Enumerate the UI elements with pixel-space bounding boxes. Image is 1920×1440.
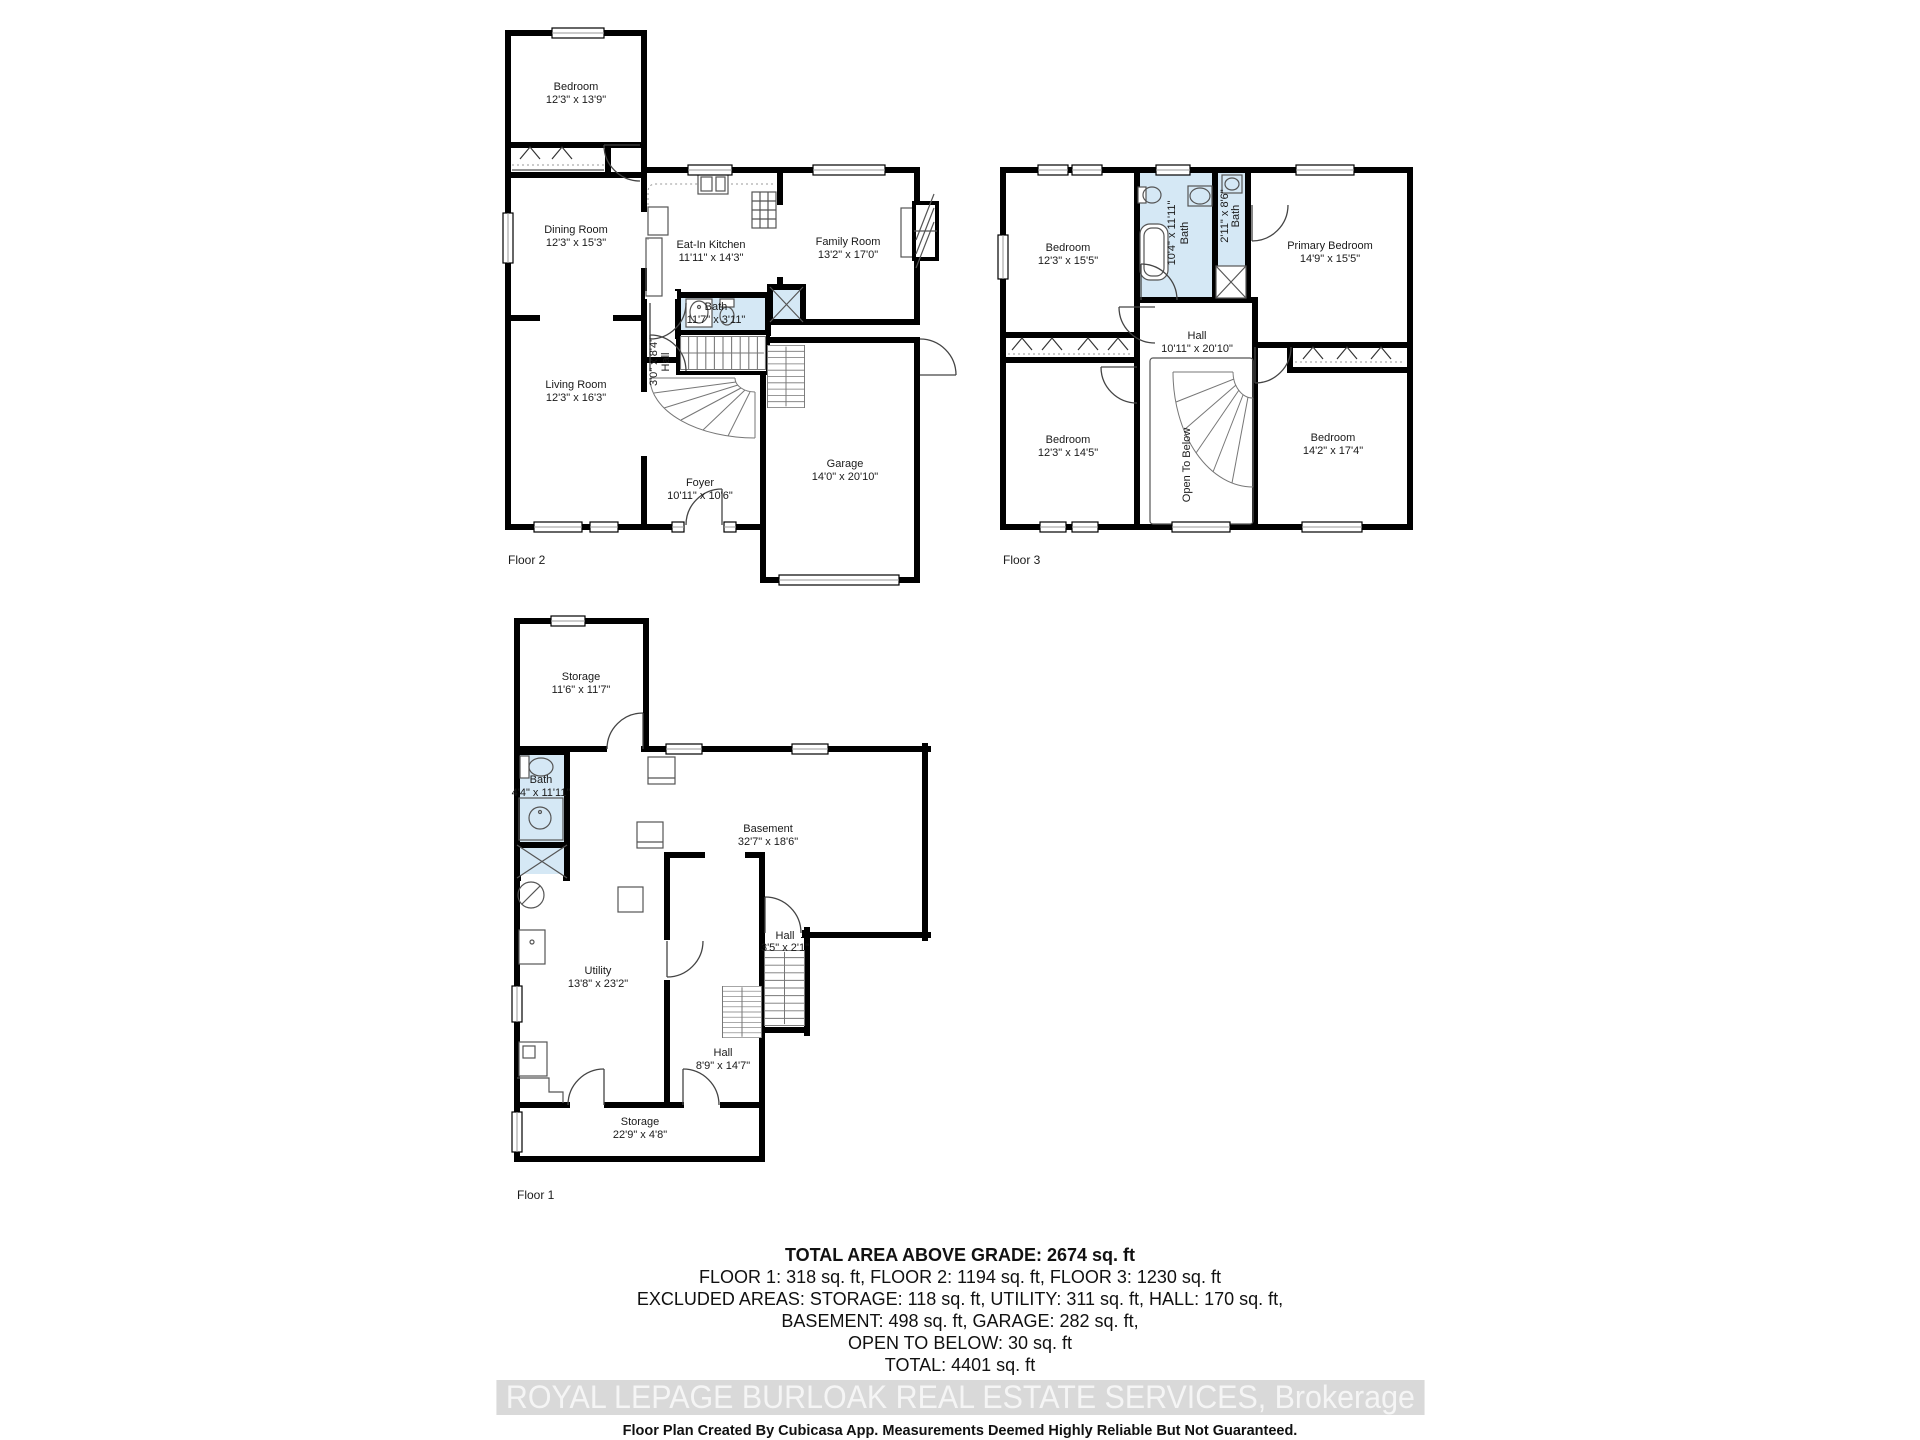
floor1-walls	[517, 746, 928, 1159]
floor1-doors	[568, 713, 801, 1105]
excluded-areas-line-2: BASEMENT: 498 sq. ft, GARAGE: 282 sq. ft…	[0, 1310, 1920, 1332]
floor-caption: Floor 3	[1003, 553, 1041, 567]
room-label: Living Room	[545, 379, 606, 391]
room-label: Bedroom	[554, 81, 599, 93]
room-label: Bedroom	[1046, 242, 1091, 254]
room-label: Eat-In Kitchen	[676, 239, 745, 251]
room-dims: 12'3" x 15'3"	[546, 237, 606, 249]
room-dims: 12'3" x 13'9"	[546, 94, 606, 106]
floor-caption: Floor 1	[517, 1188, 555, 1202]
room-label: Utility	[585, 965, 612, 977]
room-label: Bath	[1179, 222, 1191, 245]
room-label: Hall	[1188, 330, 1207, 342]
room-label: Bath	[705, 301, 728, 313]
room-dims: 13'8" x 23'2"	[568, 978, 628, 990]
floor2-living-room	[508, 318, 644, 527]
room-label: Storage	[621, 1116, 660, 1128]
room-label: Bedroom	[1311, 432, 1356, 444]
room-dims: 12'3" x 14'5"	[1038, 447, 1098, 459]
room-dims: 2'11" x 8'6"	[1219, 189, 1231, 242]
room-dims: 3'0" x 8'4"	[648, 338, 660, 386]
room-label: Primary Bedroom	[1287, 240, 1373, 252]
total-area-line: TOTAL: 4401 sq. ft	[0, 1354, 1920, 1376]
room-label: Bath	[530, 774, 553, 786]
room-dims: 11'7" x 3'11"	[687, 314, 746, 326]
total-area-above-grade: TOTAL AREA ABOVE GRADE: 2674 sq. ft	[0, 1244, 1920, 1266]
floor2-garage-stairs	[767, 345, 805, 407]
room-label: Hall	[660, 353, 672, 372]
room-label: Open To Below	[1181, 428, 1193, 502]
floor1-stairs-lower	[722, 986, 762, 1037]
room-dims: 4'4" x 11'11"	[512, 787, 571, 799]
floor-plan-page: Bedroom 12'3" x 13'9" Dining Room 12'3" …	[0, 0, 1920, 1440]
open-to-below-line: OPEN TO BELOW: 30 sq. ft	[0, 1332, 1920, 1354]
disclaimer-text: Floor Plan Created By Cubicasa App. Meas…	[0, 1420, 1920, 1440]
floor1-stairs-main	[764, 950, 805, 1025]
brokerage-watermark: ROYAL LEPAGE BURLOAK REAL ESTATE SERVICE…	[496, 1380, 1424, 1415]
room-label: Dining Room	[544, 224, 608, 236]
room-label: Storage	[562, 671, 601, 683]
area-summary: TOTAL AREA ABOVE GRADE: 2674 sq. ft FLOO…	[0, 1244, 1920, 1440]
room-label: Bedroom	[1046, 434, 1091, 446]
room-label: Hall	[714, 1047, 733, 1059]
room-dims: 14'2" x 17'4"	[1303, 445, 1363, 457]
room-label: Garage	[827, 458, 864, 470]
room-dims: 10'11" x 20'10"	[1161, 343, 1233, 355]
floor-areas-line: FLOOR 1: 318 sq. ft, FLOOR 2: 1194 sq. f…	[0, 1266, 1920, 1288]
room-label: Foyer	[686, 477, 714, 489]
room-dims: 32'7" x 18'6"	[738, 836, 798, 848]
floor-caption: Floor 2	[508, 553, 546, 567]
room-dims: 10'4" x 11'11"	[1166, 201, 1178, 266]
room-dims: 14'9" x 15'5"	[1300, 253, 1360, 265]
room-dims: 8'9" x 14'7"	[696, 1060, 750, 1072]
floor-2-plan: Bedroom 12'3" x 13'9" Dining Room 12'3" …	[503, 28, 956, 585]
room-dims: 13'2" x 17'0"	[818, 249, 878, 261]
room-dims: 22'9" x 4'8"	[613, 1129, 667, 1141]
room-label: Basement	[743, 823, 793, 835]
room-label: Family Room	[816, 236, 881, 248]
room-dims: 10'11" x 10'6"	[667, 490, 733, 502]
room-label: Hall	[776, 930, 795, 942]
floor-plans-drawing: Bedroom 12'3" x 13'9" Dining Room 12'3" …	[0, 0, 1920, 1240]
room-dims: 11'11" x 14'3"	[679, 252, 744, 264]
room-label: Bath	[1230, 205, 1242, 228]
room-dims: 12'3" x 15'5"	[1038, 255, 1098, 267]
room-dims: 3'5" x 2'1"	[761, 942, 809, 954]
floor2-stairs-straight	[681, 336, 766, 370]
room-dims: 12'3" x 16'3"	[546, 392, 606, 404]
room-dims: 11'6" x 11'7"	[552, 684, 611, 696]
floor-1-plan: Storage 11'6" x 11'7" Bath 4'4" x 11'11"…	[512, 616, 928, 1202]
room-dims: 14'0" x 20'10"	[812, 471, 879, 483]
floor-3-plan: Bedroom 12'3" x 15'5" Bath 10'4" x 11'11…	[998, 165, 1410, 567]
excluded-areas-line-1: EXCLUDED AREAS: STORAGE: 118 sq. ft, UTI…	[0, 1288, 1920, 1310]
